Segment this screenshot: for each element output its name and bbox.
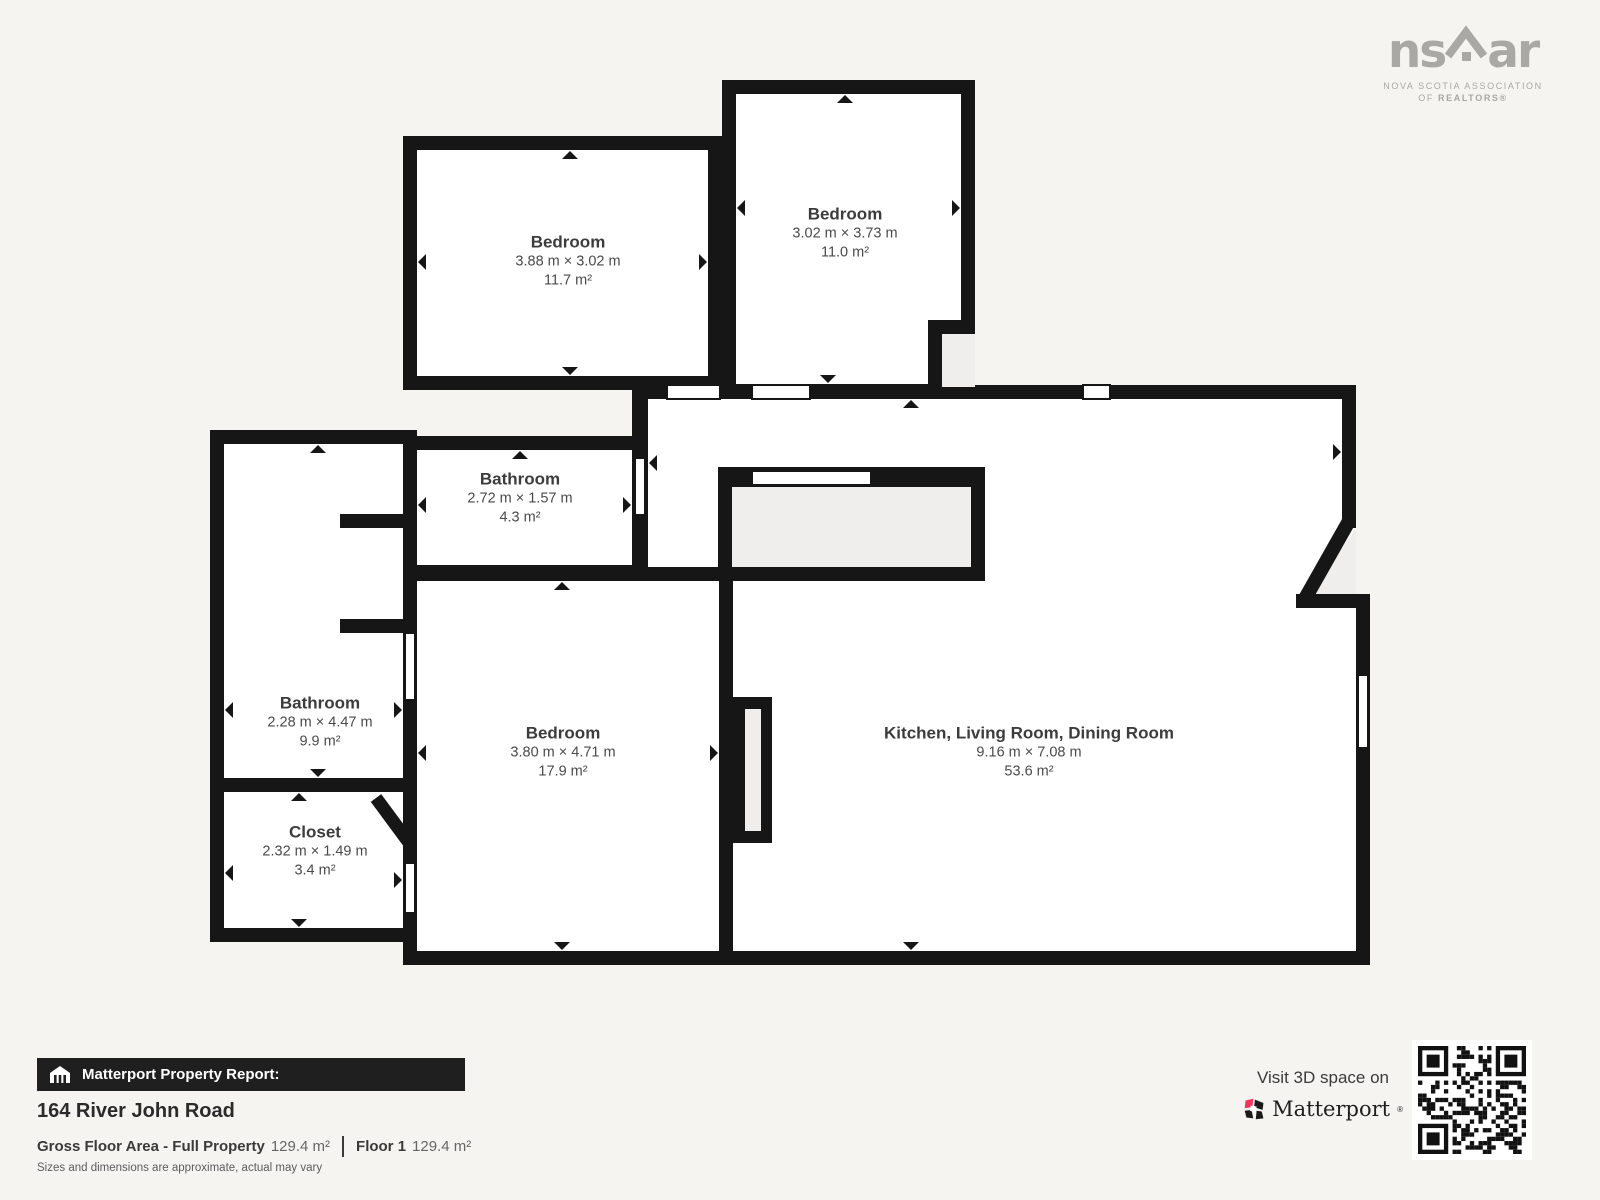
room-area: 4.3 m² — [467, 509, 572, 528]
matterport-pinwheel-icon — [1243, 1096, 1265, 1122]
room-label-bedroom-1: Bedroom 3.88 m × 3.02 m 11.7 m² — [515, 232, 620, 291]
qr-code — [1412, 1040, 1532, 1160]
nsar-logo-text-left: ns — [1388, 30, 1445, 74]
room-name: Kitchen, Living Room, Dining Room — [884, 723, 1174, 744]
room-dimensions: 3.88 m × 3.02 m — [515, 253, 620, 272]
room-area: 11.0 m² — [792, 244, 897, 263]
floor-value: 129.4 m² — [412, 1138, 471, 1155]
nsar-tagline-line1: NOVA SCOTIA ASSOCIATION — [1378, 80, 1548, 92]
room-name: Bathroom — [467, 469, 572, 490]
gfa-label: Gross Floor Area - Full Property — [37, 1138, 265, 1155]
room-dimensions: 2.28 m × 4.47 m — [267, 714, 372, 733]
room-area: 17.9 m² — [510, 763, 615, 782]
nsar-logo-text-right: ar — [1487, 30, 1538, 74]
room-dimensions: 2.72 m × 1.57 m — [467, 490, 572, 509]
chimney — [733, 697, 772, 843]
report-title: Matterport Property Report: — [82, 1066, 280, 1083]
room-label-bedroom-3: Bedroom 3.80 m × 4.71 m 17.9 m² — [510, 723, 615, 782]
divider — [342, 1136, 344, 1157]
room-dimensions: 9.16 m × 7.08 m — [884, 744, 1174, 763]
room-area: 9.9 m² — [267, 733, 372, 752]
nsar-roof-icon — [1445, 22, 1487, 74]
nsar-tagline-line2: OF REALTORS® — [1378, 92, 1548, 104]
room-label-bathroom-2: Bathroom 2.28 m × 4.47 m 9.9 m² — [267, 693, 372, 752]
room-area: 11.7 m² — [515, 272, 620, 291]
gross-floor-area-line: Gross Floor Area - Full Property 129.4 m… — [37, 1136, 471, 1157]
room-dimensions: 3.80 m × 4.71 m — [510, 744, 615, 763]
nsar-logo: ns ar NOVA SCOTIA ASSOCIATION OF REALTOR… — [1378, 22, 1548, 104]
room-dimensions: 3.02 m × 3.73 m — [792, 225, 897, 244]
gfa-value: 129.4 m² — [271, 1138, 330, 1155]
matterport-wordmark: Matterport — [1272, 1097, 1390, 1121]
room-label-closet: Closet 2.32 m × 1.49 m 3.4 m² — [262, 822, 367, 881]
room-dimensions: 2.32 m × 1.49 m — [262, 843, 367, 862]
house-report-icon — [50, 1066, 70, 1083]
trademark-symbol: ® — [1397, 1105, 1403, 1114]
room-name: Closet — [262, 822, 367, 843]
floor-label: Floor 1 — [356, 1138, 406, 1155]
room-name: Bedroom — [792, 204, 897, 225]
report-title-bar: Matterport Property Report: — [37, 1058, 465, 1091]
qr-code-pattern — [1418, 1046, 1526, 1154]
room-name: Bedroom — [510, 723, 615, 744]
disclaimer-text: Sizes and dimensions are approximate, ac… — [37, 1162, 322, 1174]
matterport-cta: Visit 3D space on Matterport® — [1243, 1068, 1403, 1122]
room-area: 53.6 m² — [884, 763, 1174, 782]
unmapped-island — [718, 467, 985, 581]
room-name: Bedroom — [515, 232, 620, 253]
floor-plan — [0, 0, 1600, 1200]
property-address: 164 River John Road — [37, 1100, 235, 1123]
room-area: 3.4 m² — [262, 862, 367, 881]
matterport-logo: Matterport® — [1243, 1096, 1403, 1122]
property-report-page: Bedroom 3.88 m × 3.02 m 11.7 m² Bedroom … — [0, 0, 1600, 1200]
room-label-bedroom-2: Bedroom 3.02 m × 3.73 m 11.0 m² — [792, 204, 897, 263]
room-label-kitchen-living-dining: Kitchen, Living Room, Dining Room 9.16 m… — [884, 723, 1174, 782]
room-name: Bathroom — [267, 693, 372, 714]
room-label-bathroom-1: Bathroom 2.72 m × 1.57 m 4.3 m² — [467, 469, 572, 528]
visit-3d-text: Visit 3D space on — [1243, 1068, 1403, 1088]
